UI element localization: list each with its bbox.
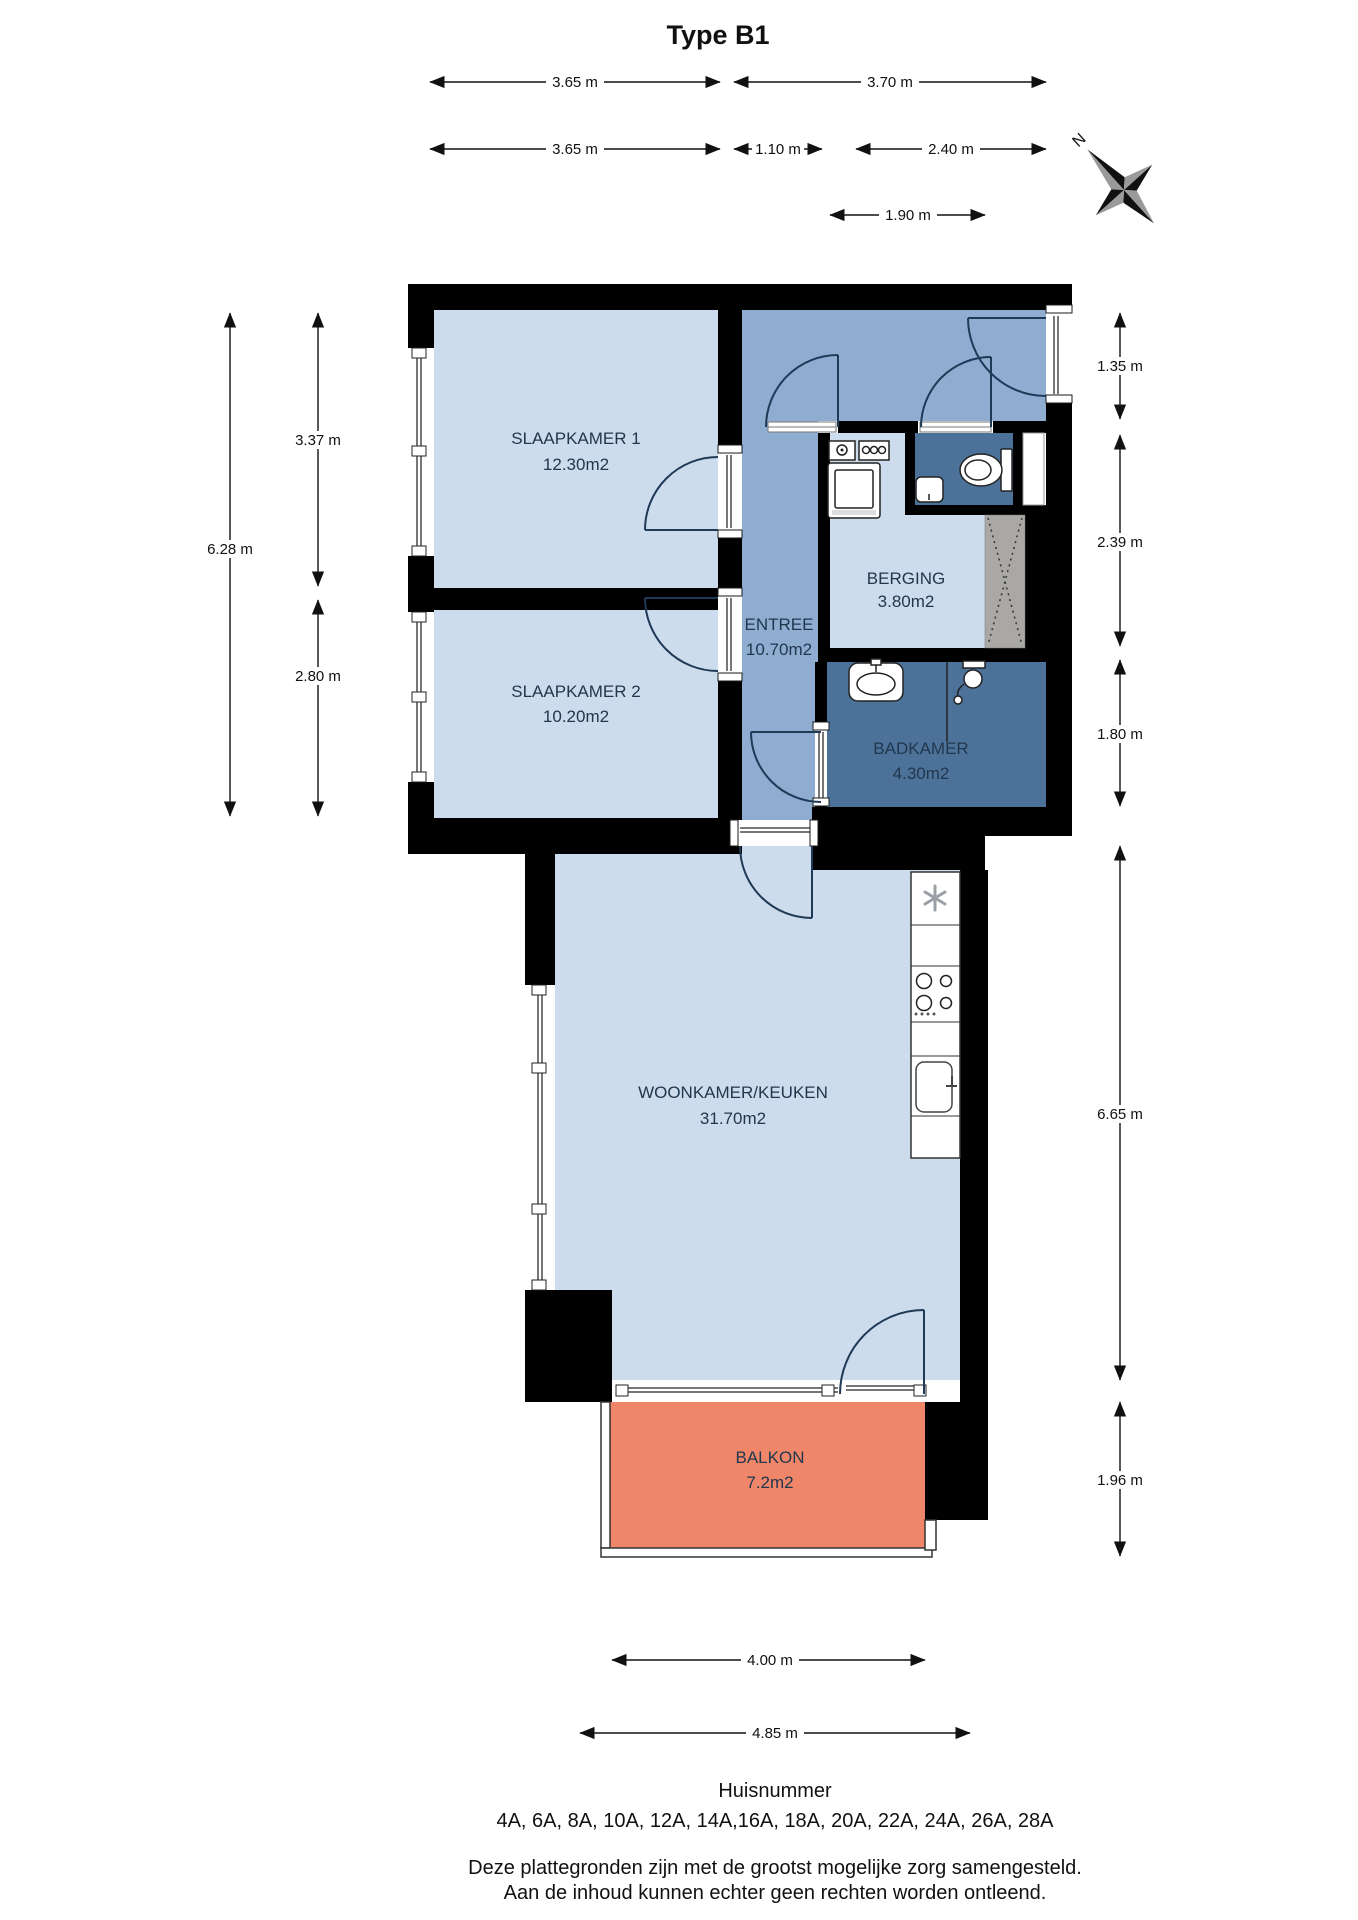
wall-segment (960, 870, 988, 1402)
wall-segment (718, 310, 742, 822)
svg-text:1.90 m: 1.90 m (885, 207, 931, 224)
kitchen-sink-icon (916, 1062, 957, 1112)
wall-segment (525, 1290, 612, 1402)
balcony-rail-right (925, 1520, 936, 1550)
dim-left-337: 3.37 m (289, 313, 347, 586)
label-balkon: BALKON (736, 1448, 805, 1467)
dim-right-135: 1.35 m (1091, 313, 1149, 419)
svg-text:4.85 m: 4.85 m (752, 1725, 798, 1742)
balcony-rail-left (601, 1402, 610, 1548)
wall-segment (812, 807, 1072, 836)
balcony-rail-bottom (601, 1548, 932, 1557)
dim-bottom-400: 4.00 m (612, 1651, 925, 1669)
badkamer-door-opening (815, 730, 827, 800)
label-woonkamer-area: 31.70m2 (700, 1109, 766, 1128)
huisnummer-label: Huisnummer (718, 1780, 832, 1802)
dim-right-665: 6.65 m (1091, 846, 1149, 1380)
wall-segment (993, 421, 1046, 433)
wall-segment (838, 421, 918, 433)
label-berging-area: 3.80m2 (878, 592, 935, 611)
huisnummer-list: 4A, 6A, 8A, 10A, 12A, 14A,16A, 18A, 20A,… (496, 1810, 1054, 1832)
duct-shaft-icon (985, 515, 1025, 648)
svg-text:2.39 m: 2.39 m (1097, 534, 1143, 551)
window-slaapkamer1 (408, 348, 434, 556)
washbasin-icon (849, 659, 903, 701)
svg-text:2.80 m: 2.80 m (295, 668, 341, 685)
room-slaapkamer1 (434, 310, 718, 588)
label-slaapkamer1-area: 12.30m2 (543, 455, 609, 474)
label-woonkamer: WOONKAMER/KEUKEN (638, 1083, 828, 1102)
dim-left-628: 6.28 m (201, 313, 259, 816)
dim-left-280: 2.80 m (289, 600, 347, 816)
label-badkamer-area: 4.30m2 (893, 764, 950, 783)
utility-meter-icon (829, 441, 889, 460)
dim-top2-110: 1.10 m (734, 140, 822, 158)
dim-top3-190: 1.90 m (830, 206, 985, 224)
wall-segment (925, 1402, 988, 1520)
wall-segment (905, 433, 915, 505)
svg-text:1.35 m: 1.35 m (1097, 358, 1143, 375)
wall-segment (408, 284, 1072, 310)
meter-niche (1023, 433, 1044, 505)
dim-right-239: 2.39 m (1091, 435, 1149, 646)
svg-text:3.65 m: 3.65 m (552, 74, 598, 91)
label-entree: ENTREE (745, 615, 814, 634)
svg-text:6.28 m: 6.28 m (207, 541, 253, 558)
svg-text:1.10 m: 1.10 m (755, 141, 801, 158)
wall-segment (818, 648, 1046, 662)
label-badkamer: BADKAMER (873, 739, 968, 758)
svg-text:1.80 m: 1.80 m (1097, 726, 1143, 743)
wall-segment (1025, 515, 1046, 648)
label-berging: BERGING (867, 569, 945, 588)
svg-text:3.70 m: 3.70 m (867, 74, 913, 91)
dim-top2-365: 3.65 m (430, 140, 720, 158)
label-slaapkamer1: SLAAPKAMER 1 (511, 429, 640, 448)
disclaimer-line2: Aan de inhoud kunnen echter geen rechten… (504, 1882, 1047, 1904)
svg-text:3.65 m: 3.65 m (552, 141, 598, 158)
label-slaapkamer2: SLAAPKAMER 2 (511, 682, 640, 701)
window-woonkamer (525, 985, 555, 1290)
svg-text:6.65 m: 6.65 m (1097, 1106, 1143, 1123)
window-slaapkamer2 (408, 612, 434, 782)
page-title: Type B1 (666, 20, 769, 50)
label-entree-area: 10.70m2 (746, 640, 812, 659)
compass-rose: N (1046, 109, 1183, 249)
disclaimer-line1: Deze plattegronden zijn met de grootst m… (468, 1857, 1082, 1879)
wall-segment (1013, 433, 1023, 505)
svg-text:4.00 m: 4.00 m (747, 1652, 793, 1669)
dim-right-180: 1.80 m (1091, 660, 1149, 806)
north-label: N (1070, 130, 1090, 150)
floorplan-canvas: Type B1 (0, 0, 1358, 1920)
dim-top2-240: 2.40 m (856, 140, 1046, 158)
label-slaapkamer2-area: 10.20m2 (543, 707, 609, 726)
dim-right-196: 1.96 m (1091, 1402, 1149, 1556)
wall-segment (525, 818, 738, 846)
washing-machine-icon (828, 463, 880, 518)
label-balkon-area: 7.2m2 (746, 1473, 793, 1492)
dim-top-370: 3.70 m (734, 73, 1046, 91)
svg-text:2.40 m: 2.40 m (928, 141, 974, 158)
footer: Huisnummer 4A, 6A, 8A, 10A, 12A, 14A,16A… (468, 1780, 1082, 1904)
svg-text:3.37 m: 3.37 m (295, 432, 341, 449)
dim-bottom-485: 4.85 m (580, 1724, 970, 1742)
wall-segment (905, 505, 1046, 515)
hand-basin-icon (916, 477, 943, 502)
kitchen-counter (911, 872, 960, 1158)
window-balkon-slider (612, 1380, 928, 1402)
svg-text:1.96 m: 1.96 m (1097, 1472, 1143, 1489)
dim-top-365: 3.65 m (430, 73, 720, 91)
